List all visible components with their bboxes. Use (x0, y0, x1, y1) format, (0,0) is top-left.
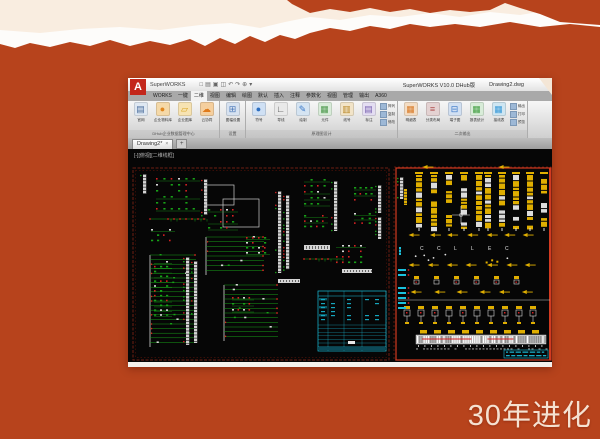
menu-tab-7[interactable]: 插入 (271, 91, 287, 101)
parts-library-icon: ● (156, 102, 170, 116)
add-tab-button[interactable]: + (176, 139, 187, 149)
ribbon-button-label: 明细表 (405, 117, 416, 122)
ribbon-group-label: 二次输出 (398, 130, 527, 138)
symbol-icon: ● (252, 102, 266, 116)
ribbon-small-button[interactable]: 打印 (510, 111, 525, 118)
small-tool-icon (510, 111, 517, 118)
title-version: SuperWORKS V10.0 DHub版 (403, 81, 475, 89)
ribbon-button[interactable]: ≡分类布局 (422, 102, 443, 123)
ribbon-group-label: 设置 (220, 130, 245, 138)
cad-window: A SuperWORKS □▤▣◫↶↷⊕▾ SuperWORKS V10.0 D… (128, 78, 552, 367)
ribbon-small-stack: 阵列复制修改 (380, 102, 395, 126)
ribbon-button[interactable]: ✎绘制 (292, 102, 313, 123)
window-bottom-edge (128, 362, 552, 367)
ribbon-button-label: 分类布局 (425, 117, 439, 122)
qat-icon[interactable]: □ (199, 79, 203, 91)
qat-icon[interactable]: ▤ (205, 79, 211, 91)
ribbon-small-button[interactable]: 复制 (380, 111, 395, 118)
menu-tab-0[interactable]: WORKS (150, 91, 175, 101)
ribbon-button[interactable]: ☁云协同 (196, 102, 217, 123)
ribbon-button[interactable]: ▦接线表 (488, 102, 509, 123)
small-tool-icon (380, 103, 387, 110)
ribbon-small-button[interactable]: 预览 (510, 119, 525, 126)
ribbon-group-2: ●符号∟导线✎绘制▦元件▥线号▤标注阵列复制修改原理图设计 (246, 101, 398, 138)
title-bar: A SuperWORKS □▤▣◫↶↷⊕▾ SuperWORKS V10.0 D… (128, 78, 552, 91)
menu-tab-2[interactable]: 二维 (191, 91, 207, 101)
app-logo[interactable]: A (130, 79, 146, 95)
slide-caption: 30年进化 (468, 392, 592, 434)
svg-text:C: C (420, 246, 424, 252)
qat-icon[interactable]: ⊕ (242, 79, 247, 91)
ribbon: ▤官网●企业物料库▱企业图库☁云协同DHub企业数据管理中心⊞图幅设置设置●符号… (128, 101, 552, 138)
ribbon-group-3: ▦明细表≡分类布局⊟端子图▦报表统计▦接线表输出打印预览二次输出 (398, 101, 528, 138)
qat-icon[interactable]: ▣ (213, 79, 219, 91)
ribbon-group-label: DHub企业数据管理中心 (128, 130, 219, 138)
document-tab[interactable]: Drawing2* × (132, 139, 173, 149)
layout-sheet: CCLLEC (394, 165, 551, 360)
slide-background: { "colors":{ "bg":"#b7431c","cream":"#f9… (0, 0, 600, 439)
drawing-library-icon: ▱ (178, 102, 192, 116)
ribbon-button-label: 导线 (277, 117, 284, 122)
layout-icon: ≡ (426, 102, 440, 116)
title-doc-name: Drawing2.dwg (489, 82, 524, 88)
svg-text:C: C (505, 246, 509, 252)
document-tab-bar: Drawing2* × + (128, 138, 552, 149)
ribbon-button[interactable]: ●符号 (248, 102, 269, 123)
draw-icon: ✎ (296, 102, 310, 116)
report-icon: ▦ (470, 102, 484, 116)
document-tab-label: Drawing2* (137, 140, 162, 149)
ribbon-button-label: 企业物料库 (154, 117, 172, 122)
ribbon-group-label: 原理图设计 (246, 130, 397, 138)
drawing-canvas[interactable]: [-][俯视][二维线框] CCLLEC (128, 149, 552, 362)
ribbon-button[interactable]: ⊞图幅设置 (222, 102, 243, 123)
small-tool-icon (380, 111, 387, 118)
small-tool-label: 修改 (388, 120, 395, 125)
ribbon-button-label: 企业图库 (177, 117, 191, 122)
menu-tab-12[interactable]: 输出 (356, 91, 372, 101)
qat-icon[interactable]: ↶ (228, 79, 233, 91)
page-curl-corner (539, 78, 552, 95)
ribbon-small-button[interactable]: 阵列 (380, 103, 395, 110)
app-name: SuperWORKS (150, 82, 185, 88)
ribbon-button-label: 标注 (365, 117, 372, 122)
ribbon-button-label: 接线表 (493, 117, 504, 122)
svg-text:C: C (437, 246, 441, 252)
menu-tab-row: WORKS一键二维视图编辑绘图默认插入注释参数化视图管理输出A360 (128, 91, 552, 101)
ribbon-button[interactable]: ▤官网 (130, 102, 151, 123)
svg-text:L: L (454, 246, 457, 252)
ribbon-button-label: 报表统计 (469, 117, 483, 122)
ribbon-small-stack: 输出打印预览 (510, 102, 525, 126)
small-tool-icon (510, 119, 517, 126)
menu-tab-5[interactable]: 绘图 (239, 91, 255, 101)
small-tool-label: 打印 (518, 112, 525, 117)
menu-tab-3[interactable]: 视图 (207, 91, 223, 101)
ribbon-button-label: 云协同 (201, 117, 212, 122)
quick-access-toolbar: □▤▣◫↶↷⊕▾ (199, 79, 252, 91)
ribbon-small-button[interactable]: 输出 (510, 103, 525, 110)
ribbon-button[interactable]: ∟导线 (270, 102, 291, 123)
svg-text:E: E (488, 246, 492, 252)
component-icon: ▦ (318, 102, 332, 116)
schematic-sheet (133, 168, 389, 360)
menu-tab-10[interactable]: 视图 (324, 91, 340, 101)
small-tool-label: 输出 (518, 104, 525, 109)
ribbon-button-label: 绘制 (299, 117, 306, 122)
qat-icon[interactable]: ↷ (235, 79, 240, 91)
menu-tab-13[interactable]: A360 (372, 91, 390, 101)
window-title: SuperWORKS V10.0 DHub版 Drawing2.dwg (403, 78, 524, 91)
menu-tab-4[interactable]: 编辑 (223, 91, 239, 101)
menu-tab-1[interactable]: 一键 (175, 91, 191, 101)
ribbon-group-1: ⊞图幅设置设置 (220, 101, 246, 138)
close-icon[interactable]: × (165, 140, 168, 149)
ribbon-button-label: 端子图 (449, 117, 460, 122)
qat-icon[interactable]: ▾ (249, 79, 252, 91)
schematic-svg: CCLLEC (128, 149, 552, 362)
small-tool-label: 阵列 (388, 104, 395, 109)
ribbon-button-label: 图幅设置 (225, 117, 239, 122)
ribbon-button[interactable]: ●企业物料库 (152, 102, 173, 123)
website-icon: ▤ (134, 102, 148, 116)
menu-tab-11[interactable]: 管理 (340, 91, 356, 101)
cloud-icon: ☁ (200, 102, 214, 116)
ribbon-button[interactable]: ▦明细表 (400, 102, 421, 123)
ribbon-button-label: 符号 (255, 117, 262, 122)
ribbon-button[interactable]: ▦报表统计 (466, 102, 487, 123)
qat-icon[interactable]: ◫ (220, 79, 226, 91)
ribbon-button[interactable]: ▤标注 (358, 102, 379, 123)
menu-tab-9[interactable]: 参数化 (303, 91, 324, 101)
ribbon-button[interactable]: ⊟端子图 (444, 102, 465, 123)
ribbon-button[interactable]: ▦元件 (314, 102, 335, 123)
ribbon-button[interactable]: ▥线号 (336, 102, 357, 123)
small-tool-label: 复制 (388, 112, 395, 117)
wiring-table-icon: ▦ (492, 102, 506, 116)
ribbon-button[interactable]: ▱企业图库 (174, 102, 195, 123)
wire-icon: ∟ (274, 102, 288, 116)
sheet-settings-icon: ⊞ (226, 102, 240, 116)
menu-tab-6[interactable]: 默认 (255, 91, 271, 101)
small-tool-icon (380, 119, 387, 126)
svg-text:L: L (471, 246, 474, 252)
ribbon-button-label: 线号 (343, 117, 350, 122)
wire-number-icon: ▥ (340, 102, 354, 116)
bom-icon: ▦ (404, 102, 418, 116)
small-tool-label: 预览 (518, 120, 525, 125)
ribbon-group-0: ▤官网●企业物料库▱企业图库☁云协同DHub企业数据管理中心 (128, 101, 220, 138)
ribbon-button-label: 官网 (137, 117, 144, 122)
ribbon-small-button[interactable]: 修改 (380, 119, 395, 126)
annotate-icon: ▤ (362, 102, 376, 116)
ribbon-button-label: 元件 (321, 117, 328, 122)
terminal-icon: ⊟ (448, 102, 462, 116)
small-tool-icon (510, 103, 517, 110)
menu-tab-8[interactable]: 注释 (287, 91, 303, 101)
viewport-label[interactable]: [-][俯视][二维线框] (134, 152, 174, 159)
